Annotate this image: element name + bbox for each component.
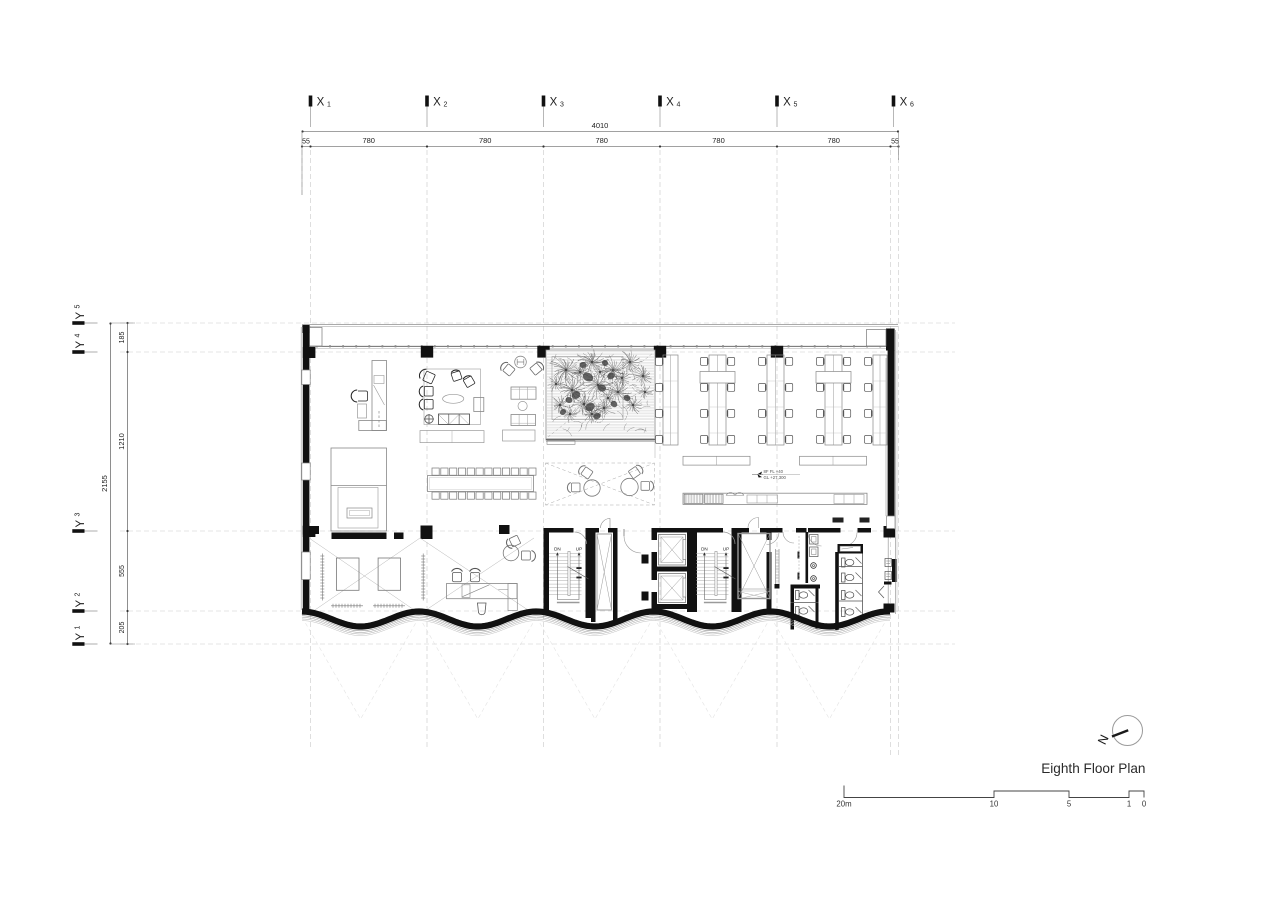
svg-text:Eighth Floor Plan: Eighth Floor Plan [1041, 761, 1145, 776]
svg-text:780: 780 [479, 136, 492, 145]
svg-text:Y: Y [75, 520, 87, 528]
svg-text:X: X [317, 97, 325, 109]
svg-text:5: 5 [1067, 800, 1072, 809]
svg-text:2: 2 [75, 593, 82, 597]
svg-text:55: 55 [891, 139, 899, 146]
svg-text:20m: 20m [836, 800, 851, 809]
svg-text:4: 4 [75, 334, 82, 338]
svg-text:2155: 2155 [100, 475, 109, 492]
svg-text:1210: 1210 [117, 433, 126, 450]
svg-text:UP: UP [576, 547, 582, 552]
svg-text:2: 2 [444, 102, 448, 109]
svg-text:Y: Y [75, 312, 87, 320]
svg-text:555: 555 [119, 565, 126, 577]
svg-text:1: 1 [327, 102, 331, 109]
svg-text:UP: UP [723, 547, 729, 552]
svg-text:0: 0 [1142, 800, 1147, 809]
svg-text:Y: Y [75, 633, 87, 641]
svg-text:X: X [666, 97, 674, 109]
svg-text:3: 3 [560, 102, 564, 109]
svg-text:205: 205 [119, 622, 126, 634]
svg-text:780: 780 [712, 136, 725, 145]
svg-text:8F FL +40: 8F FL +40 [764, 469, 784, 474]
svg-text:4010: 4010 [592, 121, 609, 130]
svg-text:X: X [900, 97, 908, 109]
svg-text:55: 55 [302, 139, 310, 146]
svg-text:X: X [783, 97, 791, 109]
svg-text:6: 6 [910, 102, 914, 109]
svg-text:4: 4 [677, 102, 681, 109]
svg-text:5: 5 [75, 305, 82, 309]
svg-text:5: 5 [794, 102, 798, 109]
svg-text:780: 780 [827, 136, 840, 145]
svg-text:3: 3 [75, 513, 82, 517]
svg-text:1: 1 [75, 626, 82, 630]
svg-text:1: 1 [1127, 800, 1131, 809]
svg-text:780: 780 [595, 136, 608, 145]
svg-text:185: 185 [119, 332, 126, 344]
svg-text:Y: Y [75, 341, 87, 349]
svg-text:X: X [433, 97, 441, 109]
svg-text:780: 780 [362, 136, 375, 145]
svg-text:DN: DN [554, 547, 561, 552]
svg-text:10: 10 [990, 800, 999, 809]
svg-text:Y: Y [75, 600, 87, 608]
svg-text:GL +27,300: GL +27,300 [764, 475, 787, 480]
svg-text:DN: DN [701, 547, 708, 552]
svg-text:X: X [550, 97, 558, 109]
